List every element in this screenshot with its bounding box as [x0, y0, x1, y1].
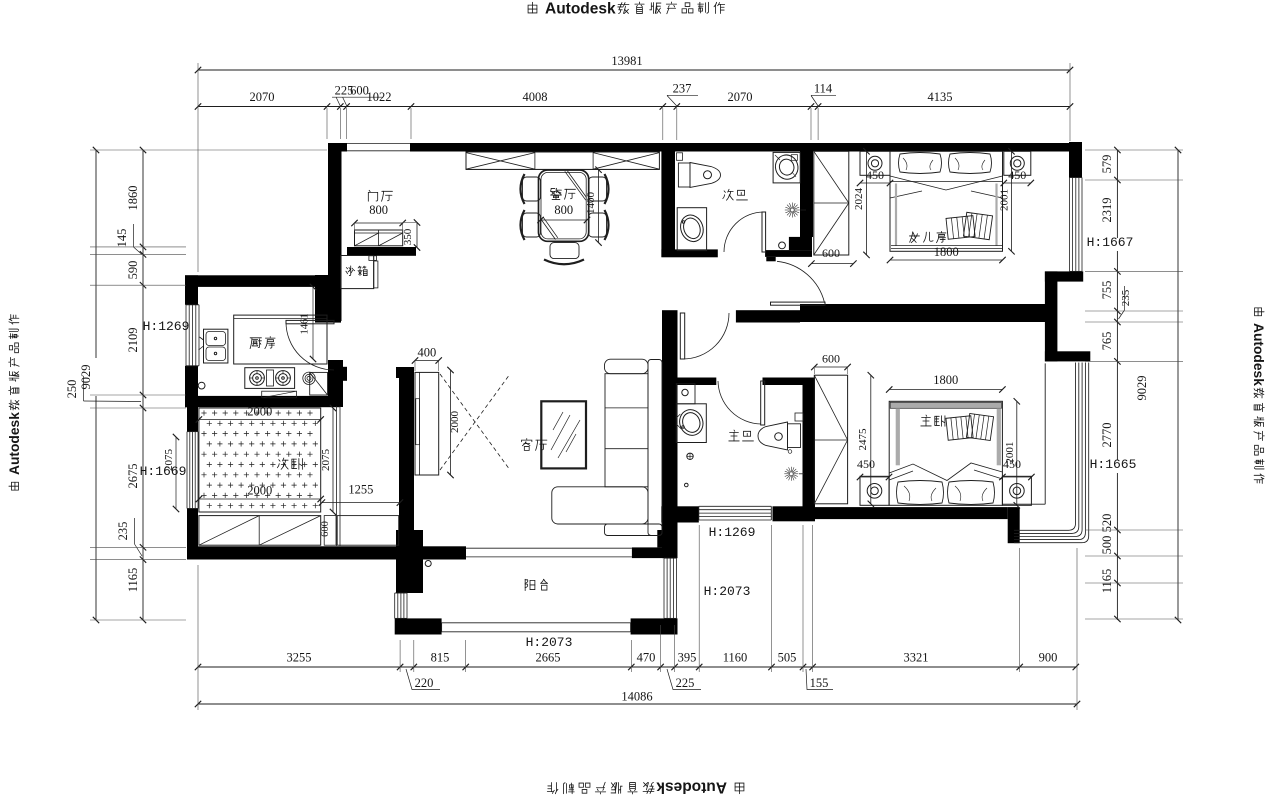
- svg-text:765: 765: [1100, 332, 1114, 351]
- svg-text:2070: 2070: [250, 90, 275, 104]
- svg-text:579: 579: [1100, 155, 1114, 174]
- svg-text:220: 220: [415, 676, 434, 690]
- svg-text:470: 470: [637, 651, 656, 665]
- svg-text:590: 590: [126, 261, 140, 280]
- svg-text:755: 755: [1100, 281, 1114, 300]
- svg-text:900: 900: [1039, 651, 1058, 665]
- svg-text:2475: 2475: [857, 428, 869, 451]
- svg-text:H:1665: H:1665: [1090, 457, 1137, 472]
- svg-text:2001: 2001: [999, 189, 1011, 211]
- svg-text:2024: 2024: [853, 188, 865, 211]
- svg-text:3321: 3321: [904, 651, 929, 665]
- svg-text:1022: 1022: [367, 90, 392, 104]
- svg-text:H:2073: H:2073: [704, 584, 751, 599]
- svg-text:Autodesk: Autodesk: [545, 1, 616, 18]
- svg-text:520: 520: [1100, 514, 1114, 533]
- svg-text:600: 600: [822, 246, 840, 260]
- svg-text:2075: 2075: [163, 449, 175, 472]
- svg-text:235: 235: [1120, 289, 1132, 306]
- svg-text:1800: 1800: [934, 245, 959, 259]
- svg-text:600: 600: [822, 352, 840, 366]
- svg-text:Autodesk: Autodesk: [1251, 323, 1266, 386]
- svg-text:2675: 2675: [126, 464, 140, 489]
- svg-text:2000: 2000: [449, 411, 461, 434]
- svg-text:1165: 1165: [1100, 569, 1114, 594]
- svg-text:1800: 1800: [933, 373, 958, 387]
- svg-text:237: 237: [673, 82, 692, 96]
- svg-text:H:1667: H:1667: [1087, 235, 1134, 250]
- svg-text:13981: 13981: [611, 54, 642, 68]
- svg-text:H:1269: H:1269: [709, 525, 756, 540]
- svg-text:3255: 3255: [287, 651, 312, 665]
- svg-text:1860: 1860: [126, 186, 140, 211]
- svg-text:9029: 9029: [1135, 376, 1149, 401]
- svg-text:H:2073: H:2073: [526, 635, 573, 650]
- svg-text:800: 800: [554, 203, 573, 217]
- svg-text:2070: 2070: [728, 90, 753, 104]
- svg-text:815: 815: [431, 651, 450, 665]
- svg-text:450: 450: [1003, 457, 1021, 471]
- svg-text:4135: 4135: [928, 90, 953, 104]
- svg-text:500: 500: [1100, 536, 1114, 555]
- svg-text:600: 600: [320, 521, 331, 537]
- svg-text:1255: 1255: [348, 483, 373, 497]
- svg-text:235: 235: [116, 522, 130, 541]
- svg-text:2665: 2665: [536, 651, 561, 665]
- svg-text:155: 155: [810, 676, 829, 690]
- svg-text:Autodesk: Autodesk: [7, 412, 22, 475]
- svg-text:14086: 14086: [621, 690, 652, 704]
- svg-text:145: 145: [115, 229, 129, 248]
- svg-text:2319: 2319: [1100, 198, 1114, 223]
- svg-text:2075: 2075: [320, 449, 332, 472]
- svg-text:400: 400: [418, 346, 437, 360]
- svg-text:Autodesk: Autodesk: [656, 779, 727, 796]
- svg-text:800: 800: [369, 203, 388, 217]
- svg-text:505: 505: [778, 651, 797, 665]
- svg-text:250: 250: [65, 380, 79, 399]
- svg-text:350: 350: [402, 228, 414, 245]
- svg-text:4008: 4008: [523, 90, 548, 104]
- svg-text:450: 450: [857, 457, 875, 471]
- svg-text:H:1269: H:1269: [143, 319, 190, 334]
- svg-text:1165: 1165: [126, 568, 140, 593]
- svg-text:450: 450: [1008, 168, 1026, 182]
- svg-text:2109: 2109: [126, 328, 140, 353]
- svg-text:1400: 1400: [585, 192, 597, 215]
- svg-text:1461: 1461: [300, 314, 311, 335]
- svg-text:2000: 2000: [247, 484, 272, 498]
- svg-text:9029: 9029: [79, 365, 93, 390]
- svg-text:395: 395: [678, 651, 697, 665]
- svg-text:114: 114: [814, 82, 833, 96]
- svg-text:2000: 2000: [247, 405, 272, 419]
- svg-text:2770: 2770: [1100, 423, 1114, 448]
- svg-text:1160: 1160: [723, 651, 748, 665]
- svg-text:225: 225: [676, 676, 695, 690]
- svg-text:450: 450: [866, 168, 884, 182]
